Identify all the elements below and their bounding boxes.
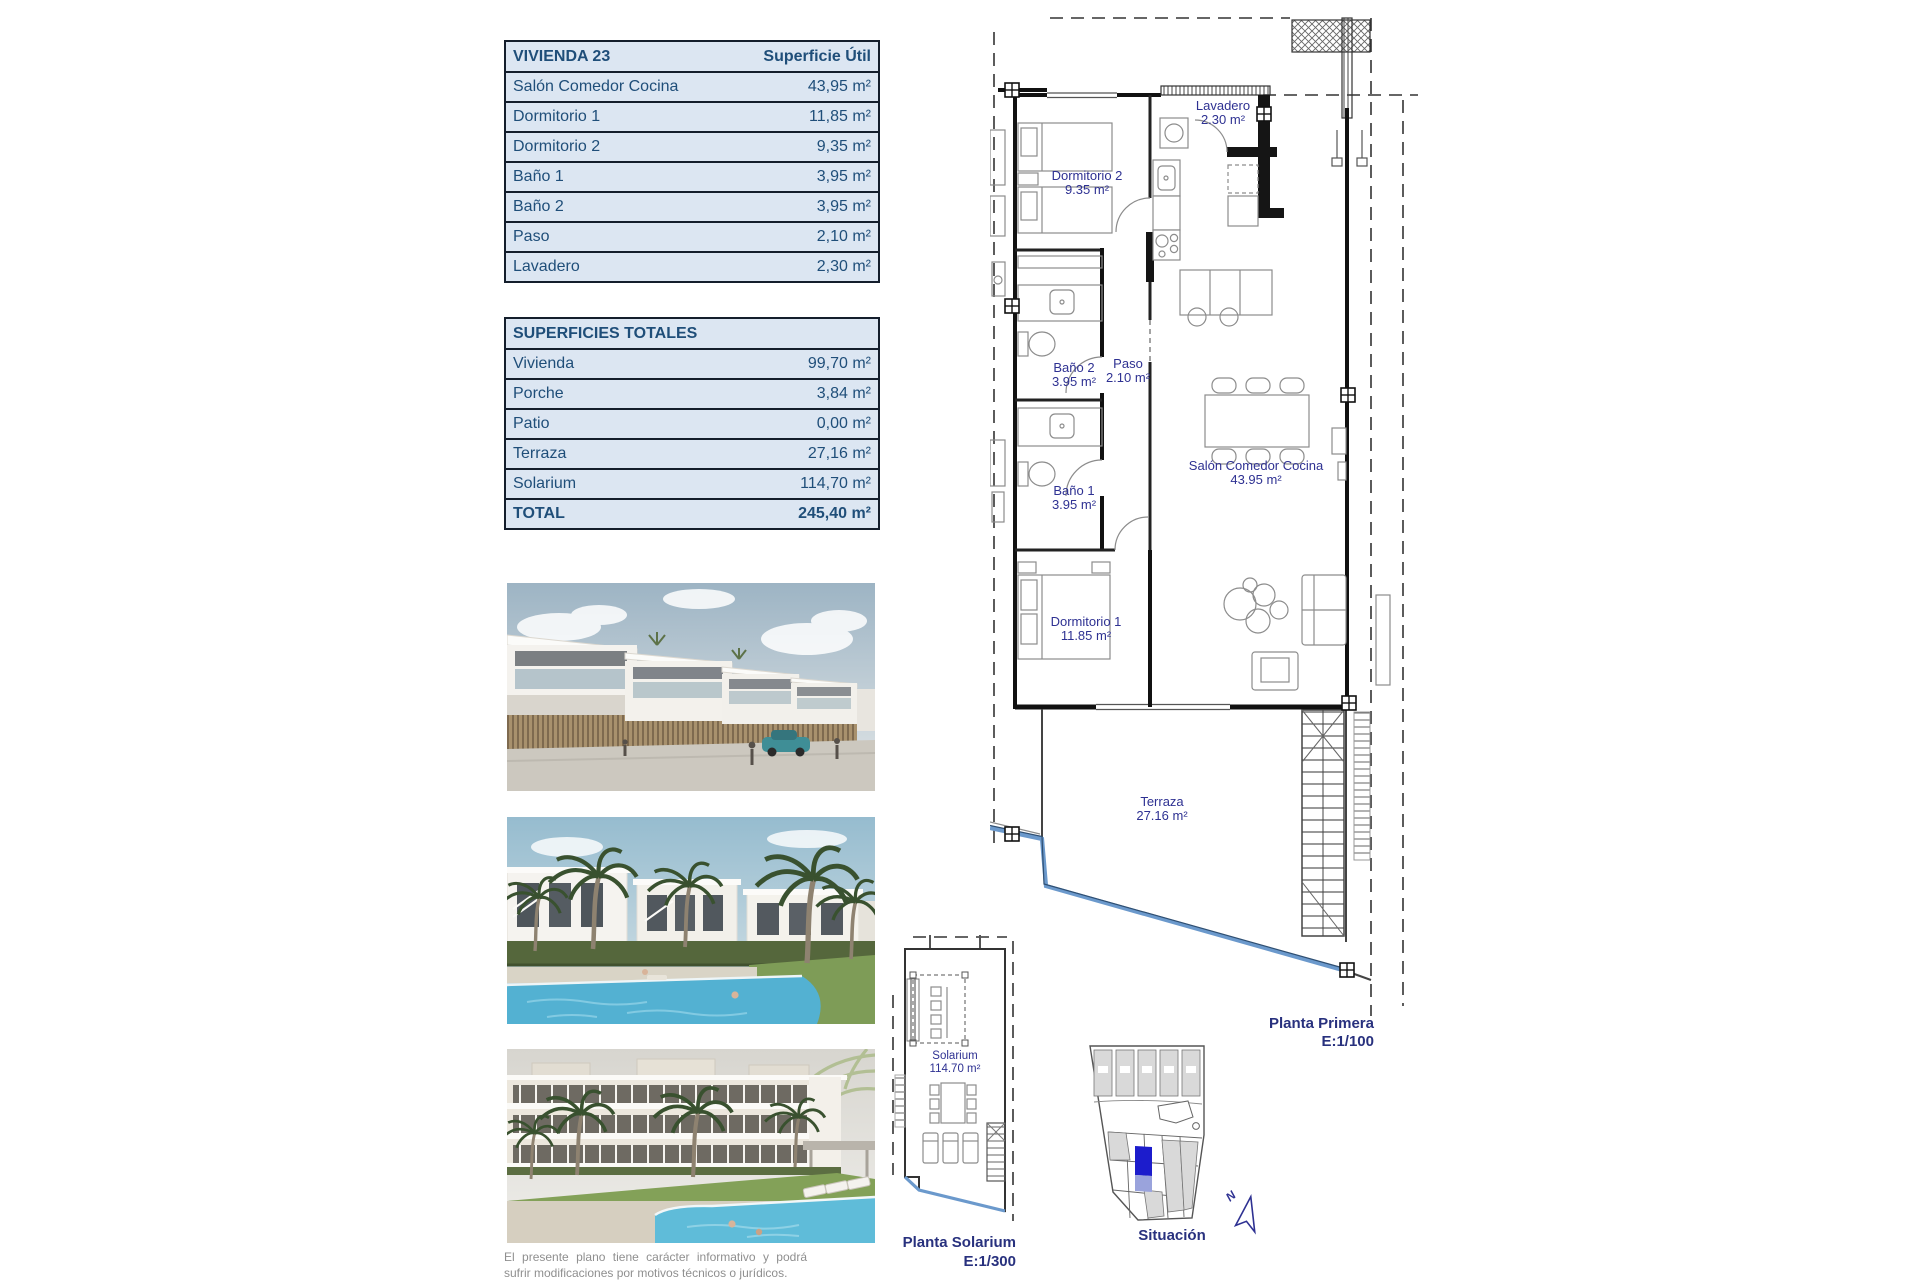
svg-text:9.35 m²: 9.35 m² [1065, 182, 1110, 197]
row-label: Vivienda [513, 356, 574, 372]
room-label-paso: Paso [1113, 356, 1143, 371]
table-row: Baño 2 3,95 m² [506, 193, 878, 223]
table-row: Salón Comedor Cocina 43,95 m² [506, 73, 878, 103]
row-value: 99,70 m² [808, 356, 871, 372]
svg-text:43.95 m²: 43.95 m² [1230, 472, 1282, 487]
table-row: Solarium 114,70 m² [506, 470, 878, 500]
row-value: 2,10 m² [817, 229, 871, 245]
neighbour-fixtures [990, 130, 1005, 522]
row-value: 11,85 m² [809, 109, 871, 125]
render-photo-pool [507, 817, 875, 1024]
room-label-salon: Salón Comedor Cocina [1189, 458, 1324, 473]
table-row: Patio 0,00 m² [506, 410, 878, 440]
row-value: 3,95 m² [817, 199, 871, 215]
table-row: Lavadero 2,30 m² [506, 253, 878, 281]
vivienda-title: VIVIENDA 23 [513, 49, 610, 65]
svg-text:3.95 m²: 3.95 m² [1052, 497, 1097, 512]
solarium-caption-title: Planta Solarium [903, 1234, 1016, 1251]
room-label-dormitorio2: Dormitorio 2 [1052, 168, 1123, 183]
dormitorio1-furniture [1018, 562, 1110, 659]
plan-caption-title: Planta Primera [1269, 1015, 1375, 1032]
svg-text:2.30 m²: 2.30 m² [1201, 112, 1246, 127]
table-row: Dormitorio 1 11,85 m² [506, 103, 878, 133]
row-label: Terraza [513, 446, 566, 462]
row-label: Solarium [513, 476, 576, 492]
plan-caption-scale: E:1/100 [1321, 1033, 1374, 1050]
page: VIVIENDA 23 Superficie Útil Salón Comedo… [0, 0, 1920, 1280]
room-label-solarium: Solarium [932, 1050, 977, 1062]
room-label-terraza: Terraza [1140, 794, 1184, 809]
row-value: 3,95 m² [817, 169, 871, 185]
staircase [1302, 710, 1344, 936]
row-label: Porche [513, 386, 564, 402]
floor-plan-solarium: Solarium 114.70 m² Planta Solarium E:1/3… [885, 935, 1035, 1275]
svg-text:114.70 m²: 114.70 m² [930, 1063, 981, 1075]
render-photo-apartments [507, 1049, 875, 1243]
row-value: 9,35 m² [817, 139, 871, 155]
totales-table: SUPERFICIES TOTALES Vivienda 99,70 m² Po… [504, 317, 880, 530]
row-value: 27,16 m² [808, 446, 871, 462]
svg-text:2.10 m²: 2.10 m² [1106, 370, 1151, 385]
vivienda-header-right: Superficie Útil [763, 49, 871, 65]
table-row: Paso 2,10 m² [506, 223, 878, 253]
room-label-dormitorio1: Dormitorio 1 [1051, 614, 1122, 629]
table-row-total: TOTAL 245,40 m² [506, 500, 878, 528]
svg-text:3.95 m²: 3.95 m² [1052, 374, 1097, 389]
row-label: Dormitorio 2 [513, 139, 600, 155]
totales-title: SUPERFICIES TOTALES [513, 326, 697, 342]
row-value: 0,00 m² [817, 416, 871, 432]
situacion-caption: Situación [1138, 1227, 1206, 1244]
row-label: Patio [513, 416, 549, 432]
svg-text:27.16 m²: 27.16 m² [1136, 808, 1188, 823]
pool-edge-line [990, 828, 1346, 971]
row-value: 2,30 m² [817, 259, 871, 275]
floor-plan-planta-primera: Dormitorio 2 9.35 m² Lavadero 2.30 m² Ba… [990, 10, 1420, 1050]
row-label: Baño 2 [513, 199, 564, 215]
row-label: Lavadero [513, 259, 580, 275]
table-row: Baño 1 3,95 m² [506, 163, 878, 193]
row-label: Paso [513, 229, 549, 245]
vivienda-table: VIVIENDA 23 Superficie Útil Salón Comedo… [504, 40, 880, 283]
disclaimer-text: El presente plano tiene carácter informa… [504, 1249, 807, 1280]
table-row: Vivienda 99,70 m² [506, 350, 878, 380]
total-value: 245,40 m² [798, 506, 871, 522]
situacion-highlight-plot [1135, 1146, 1152, 1176]
north-arrow [1235, 1195, 1261, 1232]
north-label: N [1223, 1188, 1239, 1205]
total-label: TOTAL [513, 506, 565, 522]
render-photo-street [507, 583, 875, 791]
row-value: 43,95 m² [808, 79, 871, 95]
room-label-lavadero: Lavadero [1196, 98, 1250, 113]
row-value: 114,70 m² [800, 476, 871, 492]
table-row: Porche 3,84 m² [506, 380, 878, 410]
solarium-caption-scale: E:1/300 [963, 1253, 1016, 1270]
table-row: Terraza 27,16 m² [506, 440, 878, 470]
table-row: Dormitorio 2 9,35 m² [506, 133, 878, 163]
row-label: Salón Comedor Cocina [513, 79, 678, 95]
room-label-bano1: Baño 1 [1053, 483, 1094, 498]
row-label: Dormitorio 1 [513, 109, 600, 125]
row-value: 3,84 m² [817, 386, 871, 402]
vivienda-table-header: VIVIENDA 23 Superficie Útil [506, 42, 878, 73]
row-label: Baño 1 [513, 169, 564, 185]
totales-table-header: SUPERFICIES TOTALES [506, 319, 878, 350]
svg-text:11.85 m²: 11.85 m² [1061, 628, 1112, 643]
salon-furniture [1205, 378, 1346, 690]
room-label-bano2: Baño 2 [1053, 360, 1094, 375]
situacion-map: Situación N [1080, 1040, 1280, 1255]
